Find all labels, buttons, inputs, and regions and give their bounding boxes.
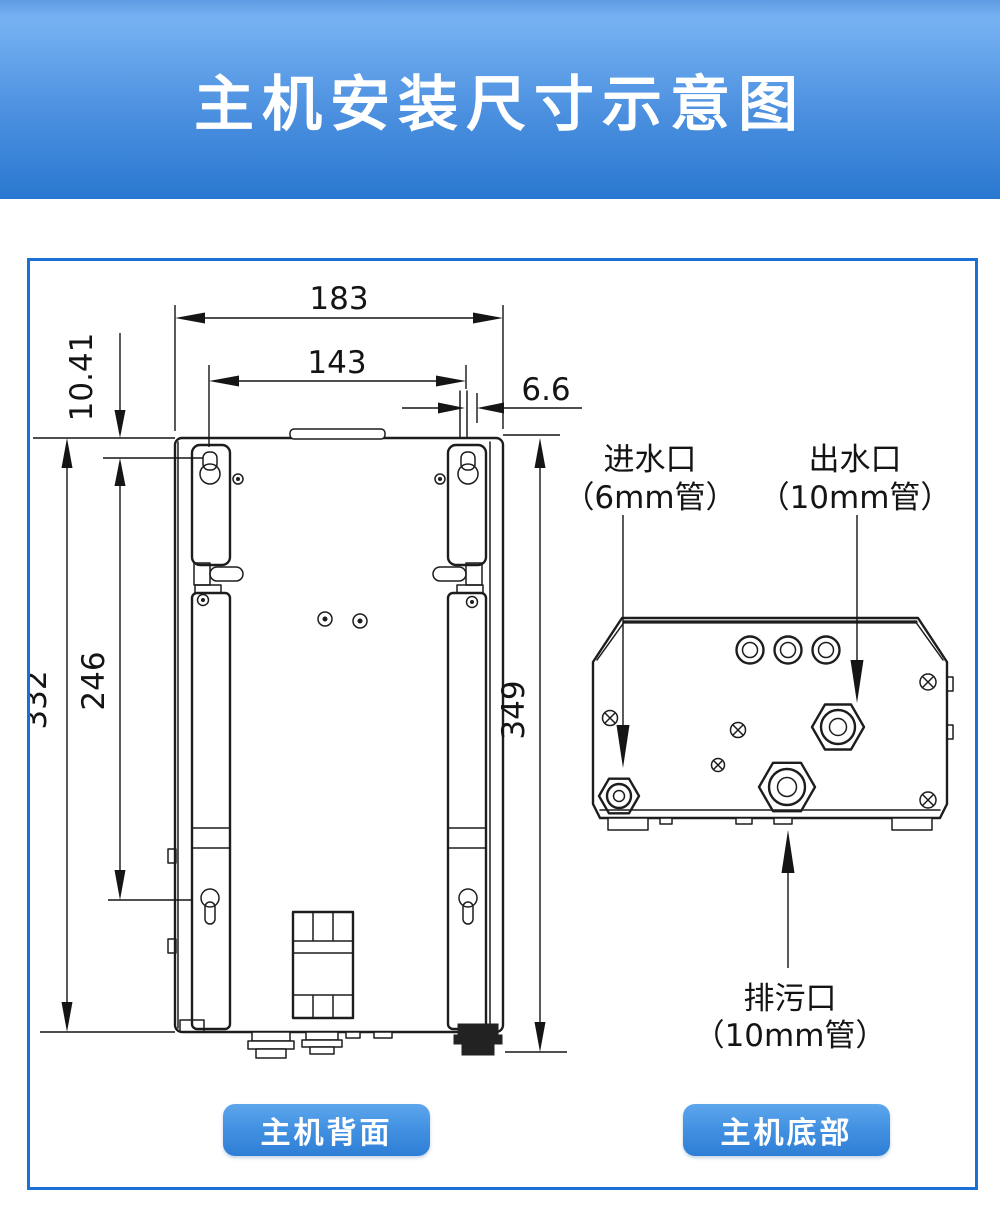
pipe-lines [460,391,467,437]
terminal-block [293,912,353,1018]
feet [180,1020,502,1058]
dim-pipe-offset: 6.6 [521,372,570,408]
dim-outer-width: 183 [309,281,368,317]
dimensions: 183 143 6.6 10.41 332 246 [30,281,582,1052]
outlet-label: 出水口 [809,442,902,478]
top-tab [290,429,385,439]
page-title: 主机安装尺寸示意图 [194,56,806,143]
outlet-port [812,705,864,750]
back-view-caption-text: 主机背面 [261,1108,393,1152]
header-banner: 主机安装尺寸示意图 [0,0,1000,199]
keyhole-top-left [200,452,220,484]
drain-label: 排污口 [744,981,837,1017]
bottom-view-drawing: 进水口 （6mm管） 出水口 （10mm管） 排污口 （10mm管） [563,442,953,1054]
dim-hole-span-h: 143 [307,345,366,381]
drain-arrow [782,830,795,873]
drain-port [759,763,815,811]
back-view-drawing [168,391,503,1058]
inlet-label: 进水口 [604,442,697,478]
bottom-view-caption-badge: 主机底部 [683,1104,890,1156]
keyhole-bottom-left [201,889,219,924]
back-view-caption-badge: 主机背面 [223,1104,430,1156]
inlet-port [599,779,639,814]
dim-hole-span-v: 246 [76,651,112,710]
drain-pipe-label: （10mm管） [694,1018,887,1054]
outlet-pipe-label: （10mm管） [759,480,952,516]
dim-body-height: 332 [30,670,54,729]
diagram-panel: 183 143 6.6 10.41 332 246 [27,258,978,1190]
dim-total-height: 349 [496,680,532,739]
keyhole-bottom-right [459,889,477,924]
inlet-pipe-label: （6mm管） [563,480,736,516]
dim-hole-top-offset: 10.41 [64,333,100,422]
keyhole-top-right [458,452,478,484]
installation-diagram: 183 143 6.6 10.41 332 246 [30,261,975,1187]
bottom-view-caption-text: 主机底部 [721,1108,853,1152]
grommets [737,637,840,664]
inlet-arrow [617,725,630,768]
outlet-arrow [851,660,864,703]
